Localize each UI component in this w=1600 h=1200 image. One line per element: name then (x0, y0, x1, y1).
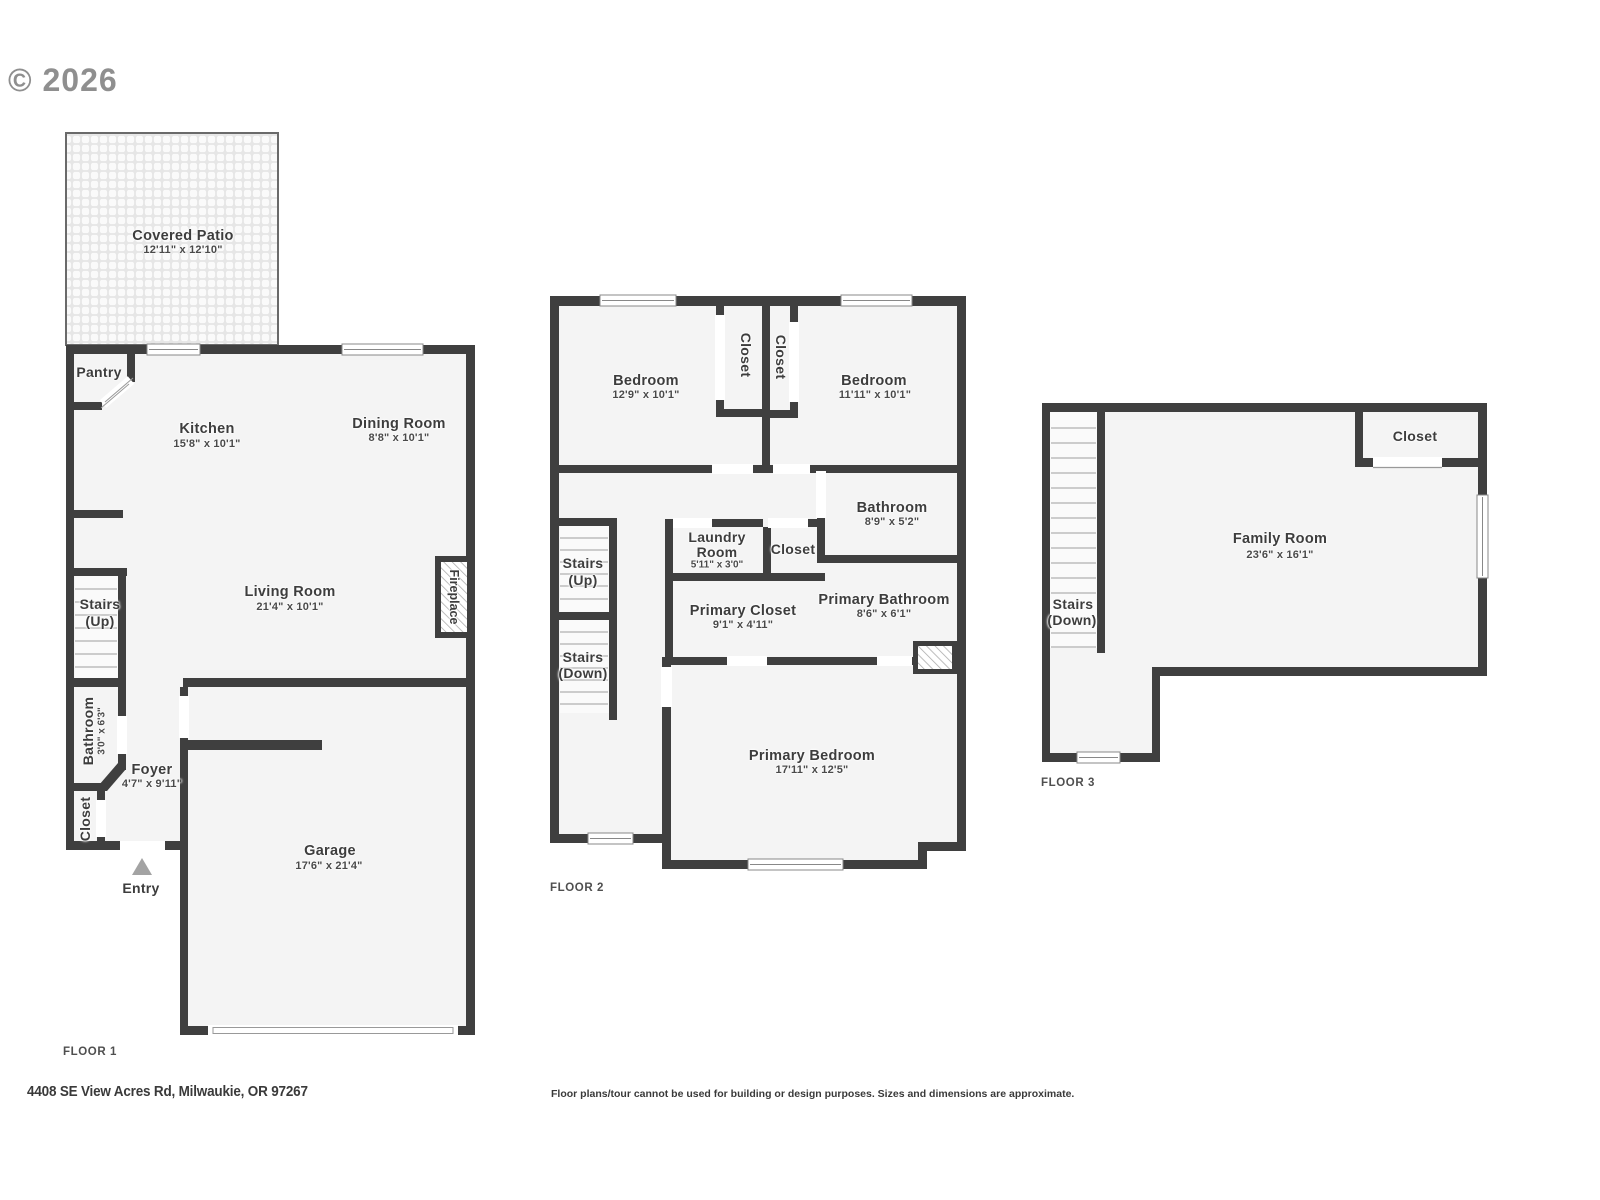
room-label-bedroom-left: Bedroom (613, 373, 679, 389)
label-stairs-down-f2: Stairs (563, 649, 604, 665)
label-stairs-up-f2: Stairs (563, 555, 604, 571)
floor2-title: FLOOR 2 (550, 882, 604, 894)
room-label-family-room: Family Room (1233, 531, 1327, 547)
room-label-bathroom-f2: Bathroom (857, 500, 928, 516)
room-label-living-room: Living Room (244, 584, 335, 600)
room-label-covered-patio: Covered Patio (132, 228, 233, 244)
room-dims-primary-bathroom: 8'6" x 6'1" (857, 608, 912, 620)
disclaimer-text: Floor plans/tour cannot be used for buil… (551, 1088, 1074, 1100)
room-dims-bedroom-left: 12'9" x 10'1" (612, 389, 679, 401)
floorplan-drawing (0, 0, 1600, 1200)
label-stairs-down-f2-dir: (Down) (558, 665, 607, 681)
shower-box (913, 641, 957, 674)
room-dims-covered-patio: 12'11" x 12'10" (143, 244, 222, 256)
room-label-kitchen: Kitchen (179, 421, 234, 437)
room-label-primary-bathroom: Primary Bathroom (818, 592, 949, 608)
room-label-closet-left-f2: Closet (738, 333, 754, 378)
room-label-primary-bedroom: Primary Bedroom (749, 748, 875, 764)
room-label-pantry: Pantry (76, 364, 121, 380)
label-stairs-up-f2-dir: (Up) (568, 572, 597, 588)
room-dims-bedroom-right: 11'11" x 10'1" (839, 389, 911, 401)
floor1-title: FLOOR 1 (63, 1046, 117, 1058)
garage-door (208, 1025, 458, 1036)
room-label-closet-hall-f2: Closet (771, 541, 816, 557)
room-label-closet-f1: Closet (77, 797, 93, 842)
label-stairs-down-f3: Stairs (1053, 596, 1094, 612)
floor3-footprint (1042, 403, 1487, 762)
floor3-title: FLOOR 3 (1041, 777, 1095, 789)
room-label-closet-right-f2: Closet (773, 335, 789, 380)
copyright-watermark: © 2026 (8, 62, 118, 99)
room-label-bedroom-right: Bedroom (841, 373, 907, 389)
floor1-footprint (66, 345, 475, 1035)
room-label-closet-f3: Closet (1393, 428, 1438, 444)
room-dims-bathroom-f2: 8'9" x 5'2" (865, 516, 920, 528)
room-label-laundry-2: Room (697, 544, 738, 560)
floor3-closet-opening (1373, 457, 1442, 468)
entry-triangle-icon (132, 858, 152, 875)
room-label-bathroom-f1: Bathroom (80, 697, 96, 766)
room-dims-bathroom-f1: 3'0" x 6'3" (97, 707, 108, 755)
property-address: 4408 SE View Acres Rd, Milwaukie, OR 972… (27, 1084, 308, 1100)
room-dims-foyer: 4'7" x 9'11" (122, 778, 182, 790)
room-dims-primary-bedroom: 17'11" x 12'5" (776, 764, 849, 776)
room-dims-primary-closet: 9'1" x 4'11" (713, 619, 773, 631)
room-label-foyer: Foyer (132, 762, 173, 778)
floor3-plan (1042, 403, 1488, 763)
label-entry: Entry (122, 880, 159, 896)
room-dims-laundry: 5'11" x 3'0" (691, 560, 744, 571)
room-label-dining-room: Dining Room (352, 416, 446, 432)
label-fireplace: Fireplace (447, 570, 461, 625)
floorplan-canvas: © 2026 Covered Patio 12'11" x 12'10" Pan… (0, 0, 1600, 1200)
room-dims-kitchen: 15'8" x 10'1" (173, 438, 240, 450)
room-dims-living-room: 21'4" x 10'1" (256, 601, 323, 613)
label-stairs-up-f1-dir: (Up) (85, 613, 114, 629)
room-dims-garage: 17'6" x 21'4" (295, 860, 362, 872)
label-stairs-up-f1: Stairs (80, 596, 121, 612)
room-label-garage: Garage (304, 843, 356, 859)
room-dims-family-room: 23'6" x 16'1" (1246, 549, 1313, 561)
room-dims-dining-room: 8'8" x 10'1" (369, 432, 430, 444)
room-label-primary-closet: Primary Closet (690, 603, 797, 619)
label-stairs-down-f3-dir: (Down) (1047, 612, 1096, 628)
room-label-laundry-1: Laundry (688, 529, 745, 545)
